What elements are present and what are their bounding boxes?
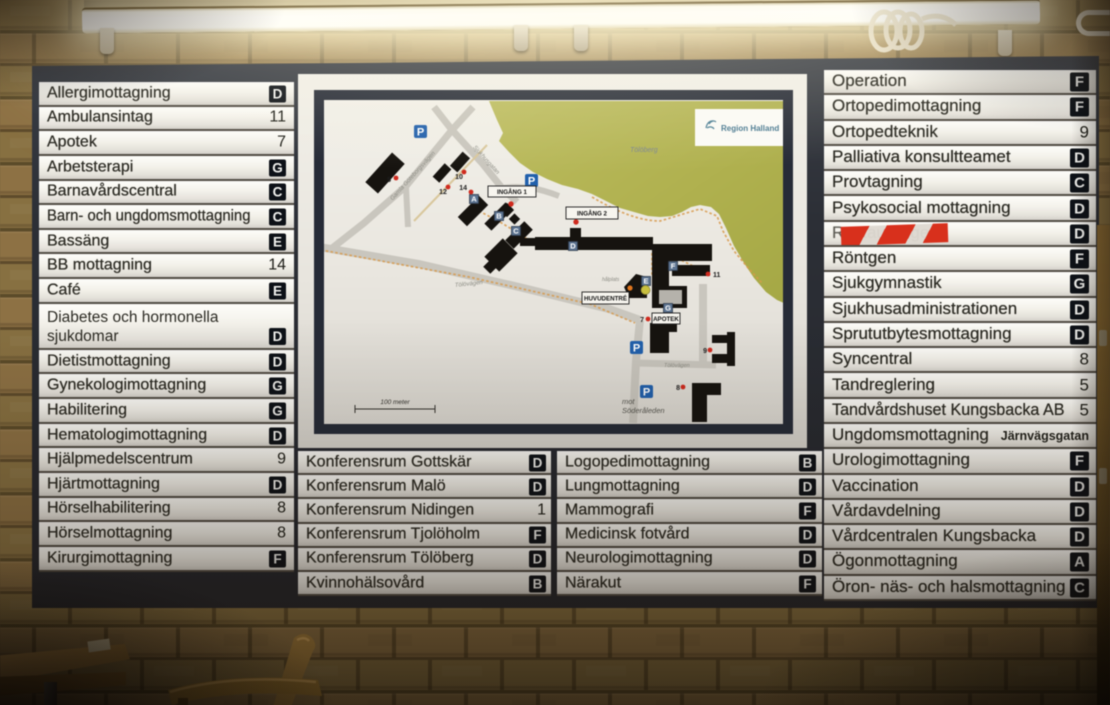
svg-text:INGÅNG 2: INGÅNG 2 (577, 210, 607, 217)
svg-text:8: 8 (676, 385, 680, 392)
svg-text:P: P (417, 127, 424, 139)
svg-text:F: F (671, 262, 676, 271)
svg-text:INGÅNG 1: INGÅNG 1 (497, 189, 527, 196)
svg-text:Tölövägen: Tölövägen (664, 363, 690, 369)
svg-text:Region Halland: Region Halland (721, 124, 779, 133)
svg-text:C: C (513, 227, 519, 236)
svg-text:HUVUDENTRÉ: HUVUDENTRÉ (584, 294, 627, 302)
svg-text:100 meter: 100 meter (380, 399, 410, 406)
svg-text:14: 14 (459, 185, 467, 192)
svg-text:APOTEK: APOTEK (653, 316, 679, 323)
svg-text:P: P (643, 387, 650, 399)
svg-text:9: 9 (703, 348, 707, 355)
svg-text:E: E (643, 277, 648, 286)
svg-text:10: 10 (455, 174, 463, 181)
svg-text:Söderåleden: Söderåleden (622, 406, 665, 415)
svg-text:Tölöberg: Tölöberg (630, 147, 658, 154)
svg-text:P: P (633, 343, 640, 355)
svg-text:hålplats: hålplats (602, 276, 620, 283)
svg-text:A: A (471, 195, 477, 204)
svg-text:D: D (570, 242, 576, 251)
svg-text:mot: mot (622, 397, 635, 406)
svg-text:5: 5 (387, 177, 391, 184)
svg-text:12: 12 (439, 189, 447, 196)
svg-text:7: 7 (640, 317, 644, 324)
svg-text:11: 11 (713, 272, 721, 279)
svg-text:G: G (665, 304, 671, 313)
svg-text:B: B (496, 212, 502, 221)
